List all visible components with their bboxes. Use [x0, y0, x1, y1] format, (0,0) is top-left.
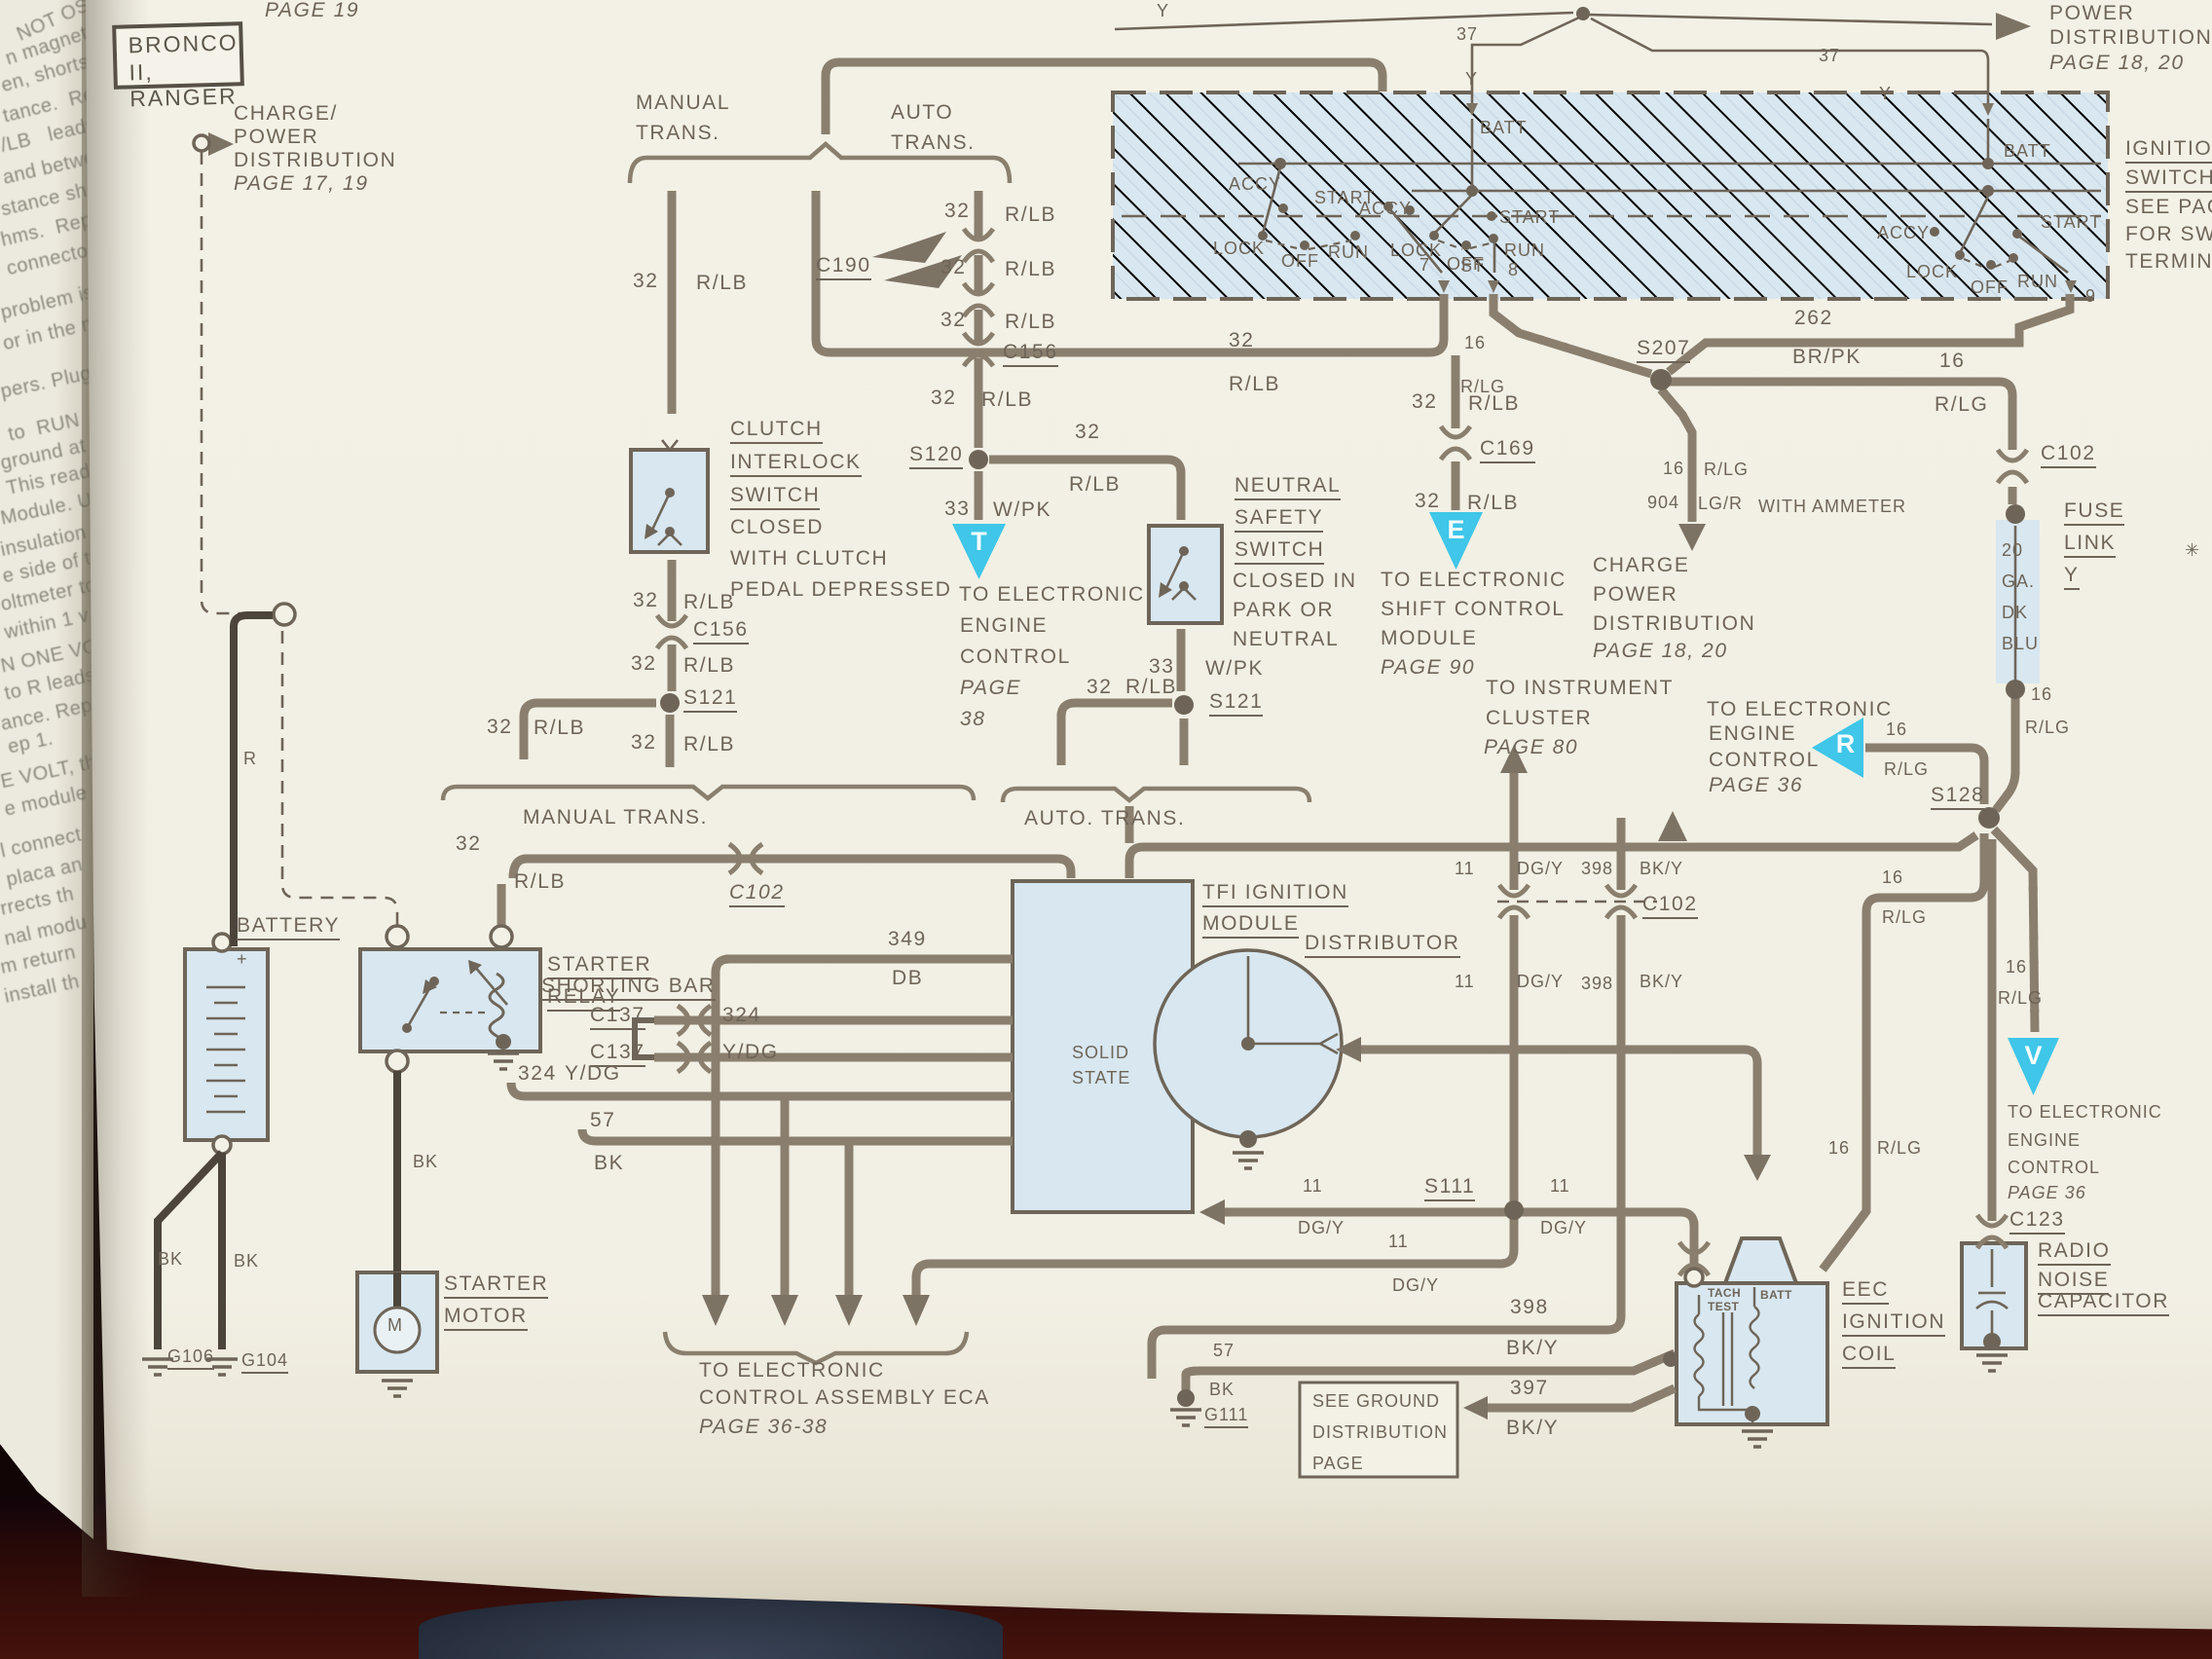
vehicle-callout-box: BRONCO II, RANGER: [112, 21, 244, 90]
connector-letter: T: [971, 527, 987, 557]
starter-relay-box: [360, 949, 540, 1051]
clutch-interlock-switch-box: [631, 450, 708, 552]
wiring-diagram-artwork: [0, 0, 2212, 1659]
neutral-safety-switch-box: [1149, 526, 1222, 623]
vehicle-line-1: BRONCO II,: [128, 29, 240, 86]
connector-letter: R: [1836, 729, 1856, 759]
ignition-switch-box: [1113, 92, 2108, 299]
vehicle-line-2: RANGER: [129, 83, 241, 113]
coil-tower: [1725, 1238, 1796, 1283]
connector-letter: E: [1447, 515, 1464, 545]
radio-noise-capacitor-box: [1962, 1243, 2026, 1348]
photo-of-wiring-diagram-page: { "meta": {"subject": "Starting / chargi…: [0, 0, 2212, 1659]
connector-letter: V: [2024, 1041, 2042, 1071]
motor-m-circle: [375, 1308, 420, 1352]
fuse-link-box: [1996, 520, 2040, 683]
see-ground-note-box: [1300, 1382, 1457, 1477]
open-terminals: [194, 135, 1703, 1286]
shorting-bar: [635, 1020, 654, 1057]
